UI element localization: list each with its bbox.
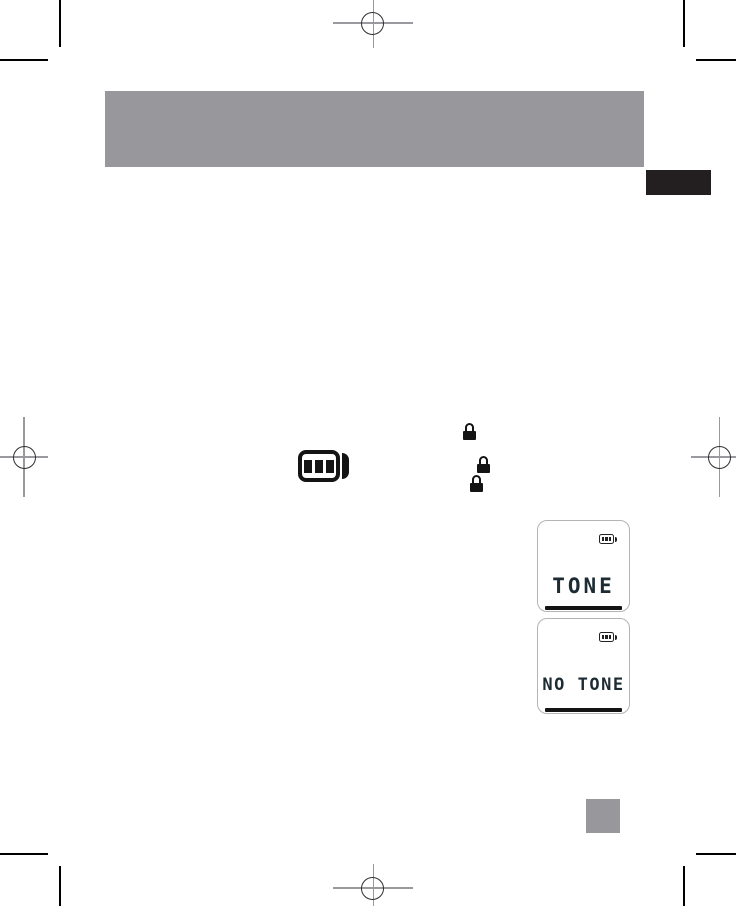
battery-segment [326,460,334,473]
lcd-text-no-tone: NO TONE [538,675,629,695]
battery-segment [609,537,612,542]
battery-terminal [342,453,349,479]
crop-mark-bottom-right-horizontal [696,853,736,855]
registration-circle-icon [361,877,384,900]
registration-mark-bottom [333,864,413,906]
display-bottom-bar [545,708,622,712]
lcd-text-tone: TONE [538,574,629,598]
registration-mark-right [691,417,736,497]
registration-mark-top [333,0,413,48]
battery-icon [599,632,617,642]
document-page: TONE NO TONE [0,0,736,906]
lock-shackle [465,423,474,431]
battery-terminal [615,635,617,640]
battery-segment [609,635,612,640]
lock-icon [477,456,490,473]
crop-mark-bottom-left-horizontal [0,853,48,855]
crop-mark-bottom-right-vertical [683,866,685,906]
battery-icon [298,450,350,482]
lock-shackle [479,456,488,464]
registration-mark-left [0,417,48,497]
display-bottom-bar [545,606,622,610]
crop-mark-top-left-vertical [59,0,61,47]
battery-body [298,450,340,482]
battery-segment [315,460,323,473]
section-index-tab [646,170,711,195]
battery-segment [605,635,608,640]
battery-body [599,534,614,544]
chapter-header-bar [105,91,644,167]
crop-mark-top-right-vertical [683,0,685,47]
lock-body [477,464,490,473]
battery-segment [602,537,605,542]
lock-icon [463,423,476,440]
crop-mark-bottom-left-vertical [59,866,61,906]
battery-body [599,632,614,642]
crop-mark-top-left-horizontal [0,59,48,61]
lock-icon [470,475,483,492]
lock-shackle [472,475,481,483]
battery-segment [304,460,312,473]
registration-circle-icon [708,446,731,469]
lock-body [463,431,476,440]
battery-terminal [615,537,617,542]
crop-mark-top-right-horizontal [696,59,736,61]
lock-body [470,483,483,492]
page-number-block [586,799,620,833]
lcd-display-tone: TONE [537,520,630,612]
battery-segment [605,537,608,542]
registration-circle-icon [13,446,36,469]
lcd-display-no-tone: NO TONE [537,618,630,714]
battery-icon [599,534,617,544]
battery-segment [602,635,605,640]
registration-circle-icon [361,12,384,35]
